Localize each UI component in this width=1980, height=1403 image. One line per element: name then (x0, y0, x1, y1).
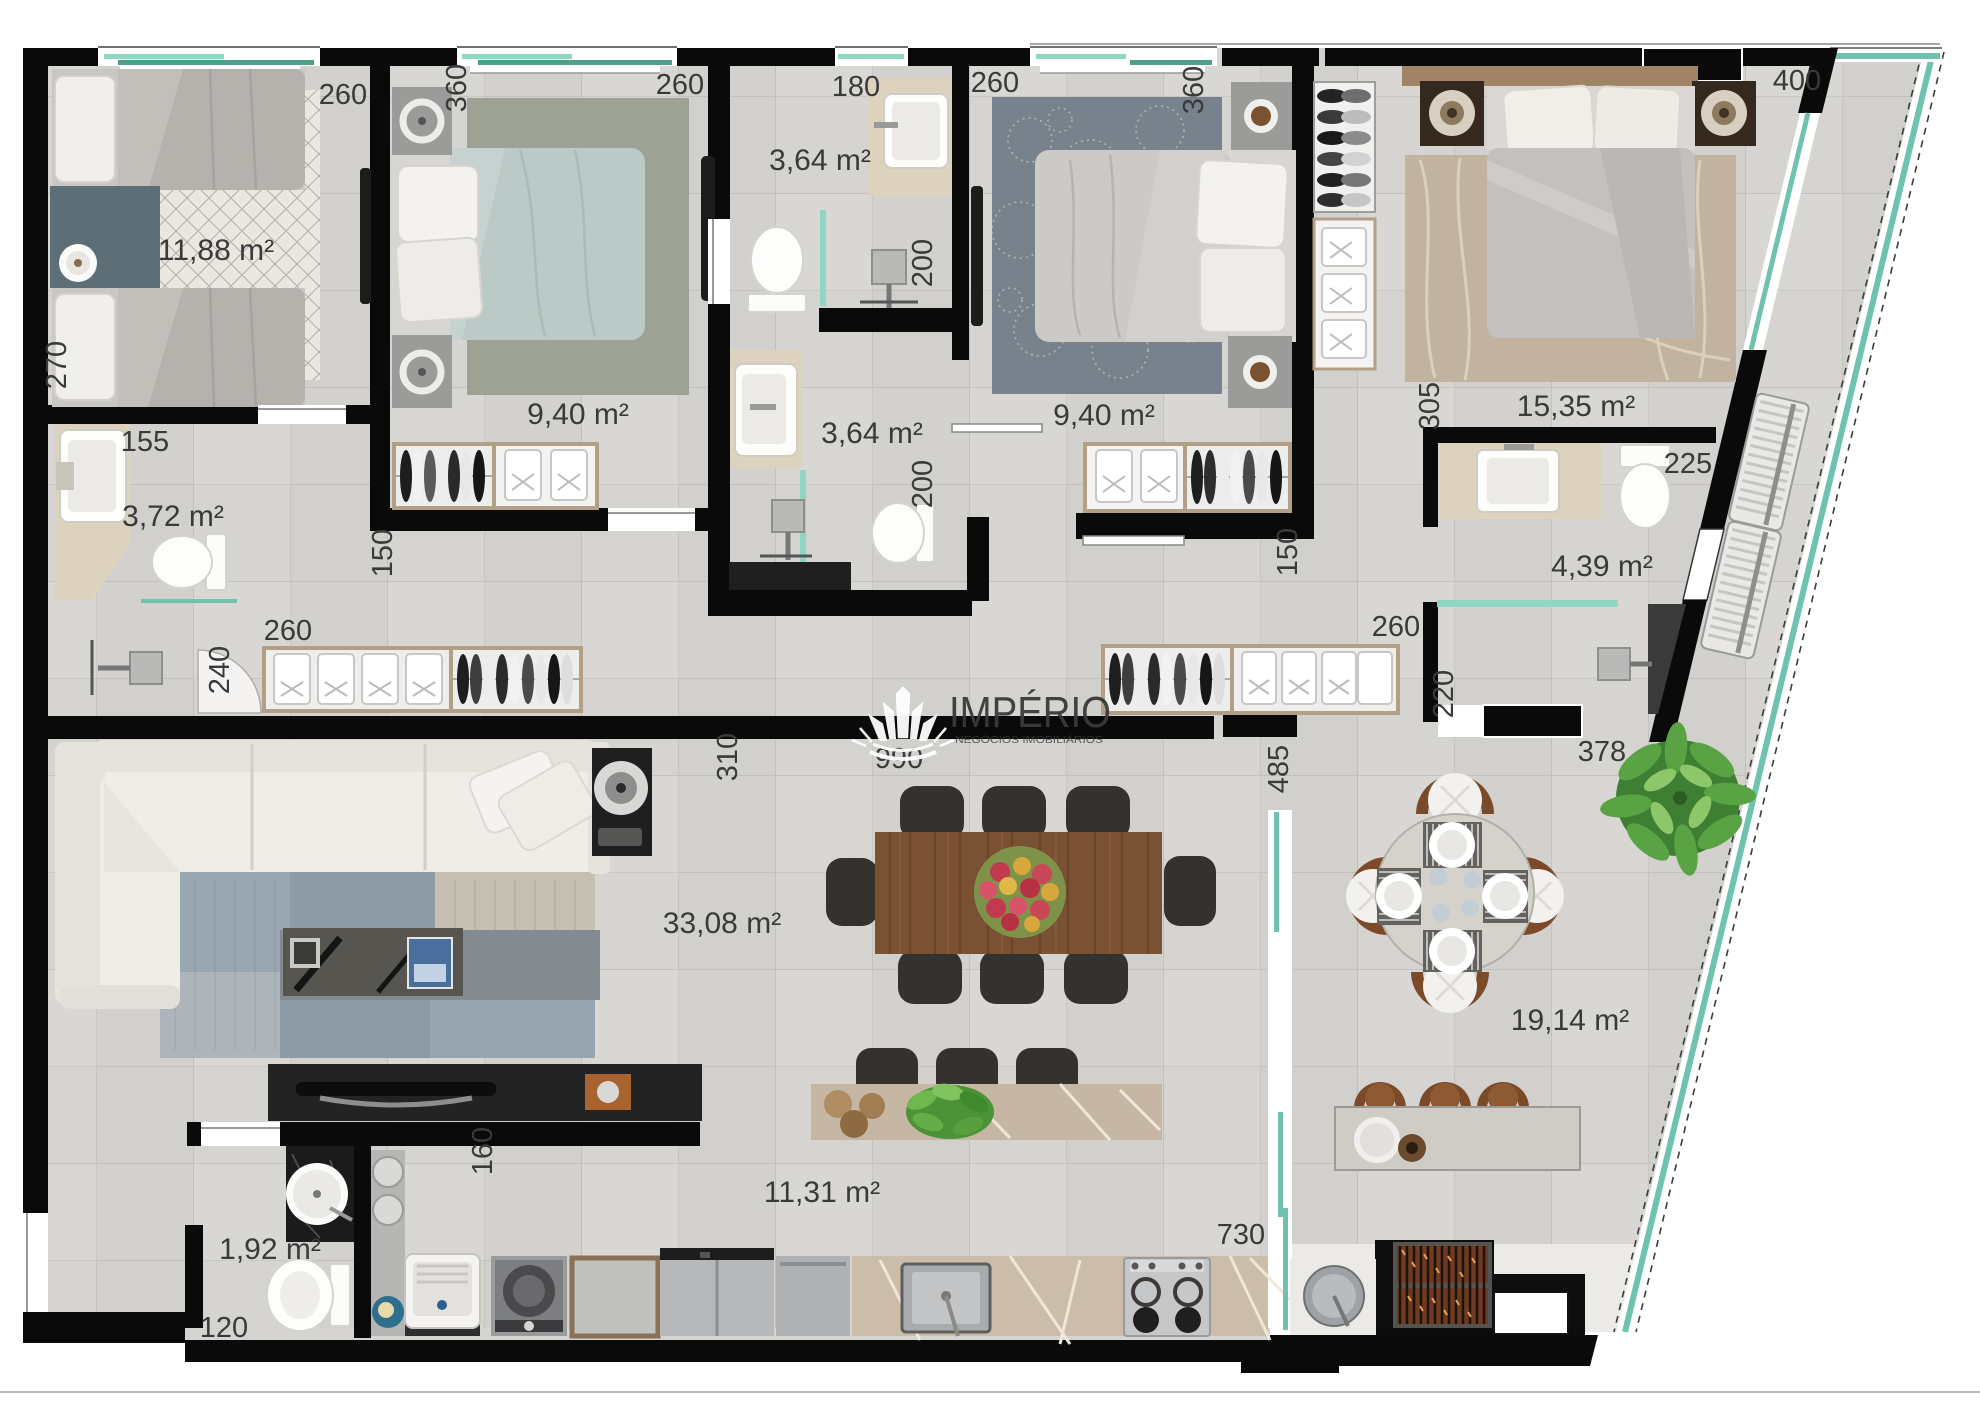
svg-text:9,40 m²: 9,40 m² (527, 398, 629, 431)
svg-text:120: 120 (200, 1312, 248, 1344)
svg-text:270: 270 (41, 341, 73, 389)
svg-text:150: 150 (1272, 528, 1304, 576)
svg-text:1,92 m²: 1,92 m² (219, 1233, 321, 1266)
svg-text:15,35 m²: 15,35 m² (1517, 390, 1635, 423)
svg-text:305: 305 (1414, 382, 1446, 430)
svg-text:3,64 m²: 3,64 m² (769, 144, 871, 177)
svg-text:3,72 m²: 3,72 m² (122, 500, 224, 533)
svg-text:180: 180 (832, 71, 880, 103)
svg-text:33,08 m²: 33,08 m² (663, 907, 781, 940)
svg-text:225: 225 (1664, 448, 1712, 480)
svg-text:3,64 m²: 3,64 m² (821, 417, 923, 450)
svg-text:19,14 m²: 19,14 m² (1511, 1004, 1629, 1037)
svg-text:4,39 m²: 4,39 m² (1551, 550, 1653, 583)
svg-text:240: 240 (204, 646, 236, 694)
svg-text:360: 360 (441, 64, 473, 112)
svg-text:200: 200 (907, 239, 939, 287)
svg-text:11,88 m²: 11,88 m² (158, 234, 274, 267)
svg-text:200: 200 (907, 460, 939, 508)
svg-text:360: 360 (1178, 66, 1210, 114)
svg-text:400: 400 (1773, 65, 1821, 97)
svg-text:150: 150 (367, 529, 399, 577)
svg-text:260: 260 (264, 615, 312, 647)
svg-text:11,31 m²: 11,31 m² (764, 1176, 880, 1209)
svg-text:260: 260 (656, 69, 704, 101)
svg-text:220: 220 (1428, 670, 1460, 718)
svg-text:155: 155 (121, 426, 169, 458)
svg-text:378: 378 (1578, 736, 1626, 768)
svg-text:485: 485 (1263, 745, 1295, 793)
svg-text:260: 260 (319, 79, 367, 111)
svg-text:260: 260 (1372, 611, 1420, 643)
svg-text:NEGÓCIOS IMOBILIÁRIOS: NEGÓCIOS IMOBILIÁRIOS (955, 733, 1103, 746)
svg-text:260: 260 (971, 67, 1019, 99)
svg-text:310: 310 (712, 733, 744, 781)
svg-text:IMPÉRIO: IMPÉRIO (949, 688, 1111, 737)
svg-text:9,40 m²: 9,40 m² (1053, 399, 1155, 432)
svg-text:730: 730 (1217, 1219, 1265, 1251)
svg-text:160: 160 (467, 1127, 499, 1175)
